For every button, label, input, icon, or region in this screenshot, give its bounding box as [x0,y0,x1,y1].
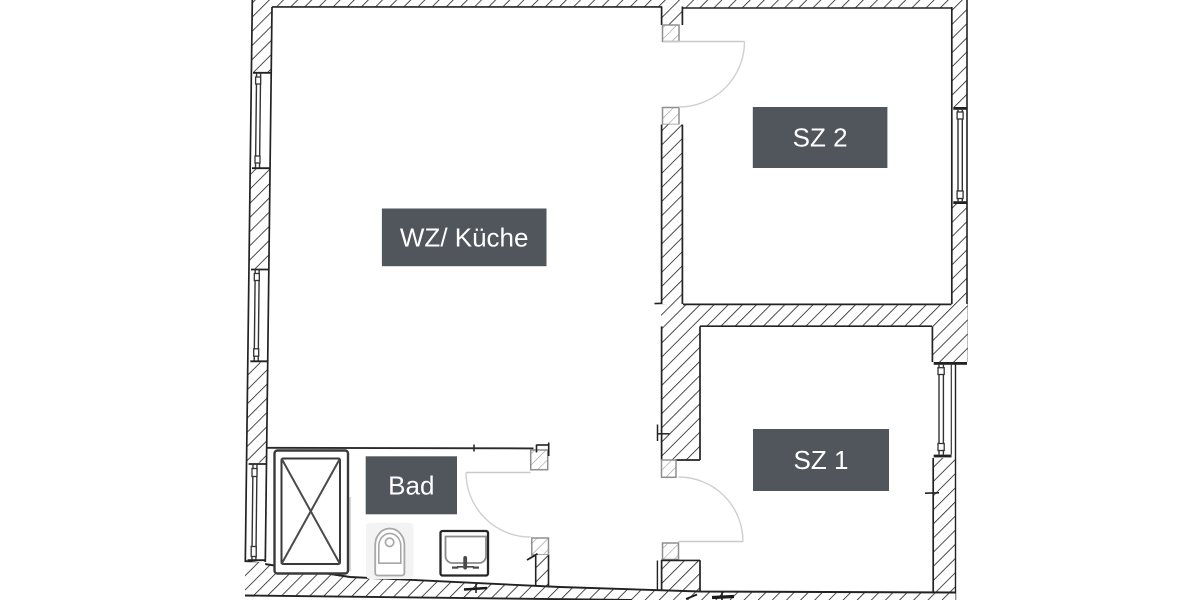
svg-text:Bad: Bad [388,471,434,501]
svg-text:WZ/ Küche: WZ/ Küche [400,222,529,252]
svg-text:SZ 1: SZ 1 [794,445,849,475]
svg-text:SZ 2: SZ 2 [793,123,848,153]
